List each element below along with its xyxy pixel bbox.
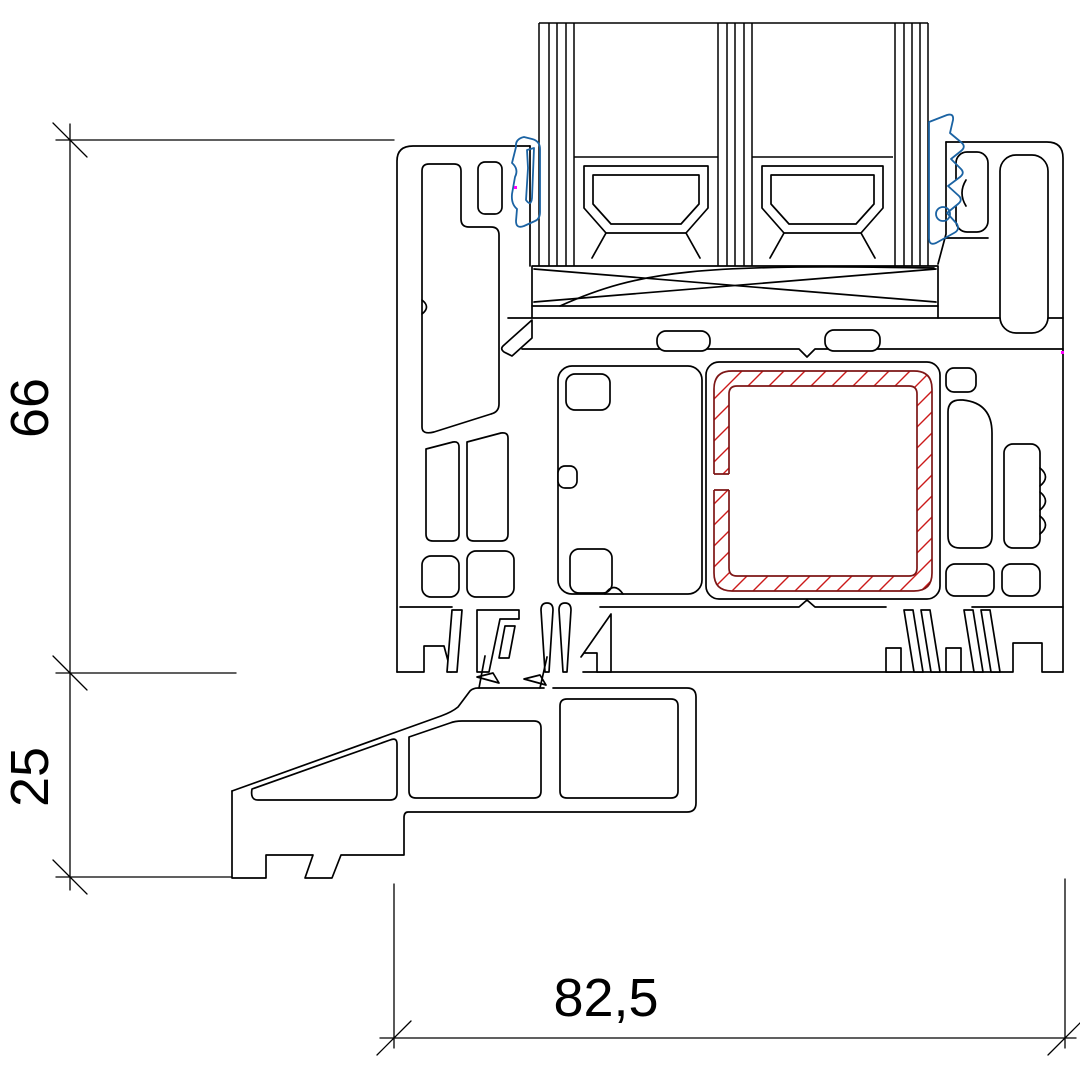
sill-chamber-mid [409,721,541,798]
chamber-central-hook [566,374,610,410]
steel-chamber-wall [706,362,940,599]
artifact-dot [514,186,517,189]
chamber-central-side-notch [558,466,577,488]
spacer-bar-left-inner [593,175,699,224]
glazing-unit [539,23,928,266]
chamber-right-wavy [1004,444,1040,548]
gasket-left [512,137,540,227]
clip-wedge [581,614,611,672]
chamber-mid-left-1 [426,442,459,541]
clip-leg [447,610,462,672]
spacer-seal-left [592,233,700,258]
frame-glazing-nose [502,320,532,356]
gasket-groove-outer [825,330,880,351]
sill-clip-connection [447,603,611,688]
sill-chamber-wedge [252,739,397,800]
slot-fin [921,610,940,672]
cad-drawing-canvas: 66 25 82,5 [0,0,1080,1080]
spacer-seal-right [770,233,875,258]
chamber-right-small [946,368,976,392]
glass-pane-lines-left [539,23,574,266]
artifact-dot [1061,351,1064,354]
glass-pane-lines-right [895,23,928,266]
sill-chamber-right [560,699,678,798]
clip-hook-hole [499,626,515,658]
chamber-bottom-right-2 [1002,564,1040,596]
glazing-packer [532,266,938,306]
spacer-bar-right-outer [762,166,883,233]
gasket-groove-inner [657,331,710,351]
cad-drawing-page: 66 25 82,5 [0,0,1080,1080]
chamber-right-top-tall [1000,155,1048,333]
spacer-bar-right-inner [771,175,874,224]
chamber-right-curved [948,400,992,548]
glass-pane-lines-middle [718,23,752,266]
chamber-bottom-left-2 [467,551,514,597]
chamber-central-bottom-square [570,549,612,593]
mounting-slots [886,610,1000,672]
slot-fin [904,610,923,672]
clip-fin [541,603,553,672]
clip-fin [559,603,571,672]
dim-label-overall-depth: 82,5 [553,968,658,1028]
chamber-bottom-left-1 [422,556,459,597]
frame-bridge-step [532,306,938,318]
frame-bottom-edge-left [397,646,451,672]
slot-fin [964,610,983,672]
slot-foot [886,648,901,672]
slot-foot [946,648,961,672]
frame-gasket-channel-wall [938,142,946,264]
chamber-mid-left-2 [467,433,508,541]
gasket-foot-block [478,162,502,214]
chamber-bottom-right-1 [946,564,994,596]
frame-shelf-line [522,349,1063,357]
sill-extension-profile [232,688,696,878]
dim-label-sill-height: 25 [0,747,60,807]
glazing-gaskets [512,115,964,244]
dim-label-frame-height: 66 [0,378,60,438]
slot-fin [981,610,1000,672]
frame-bottom-wall [400,600,1063,607]
spacer-bar-left-outer [584,166,708,233]
steel-wall-gap [710,474,733,490]
